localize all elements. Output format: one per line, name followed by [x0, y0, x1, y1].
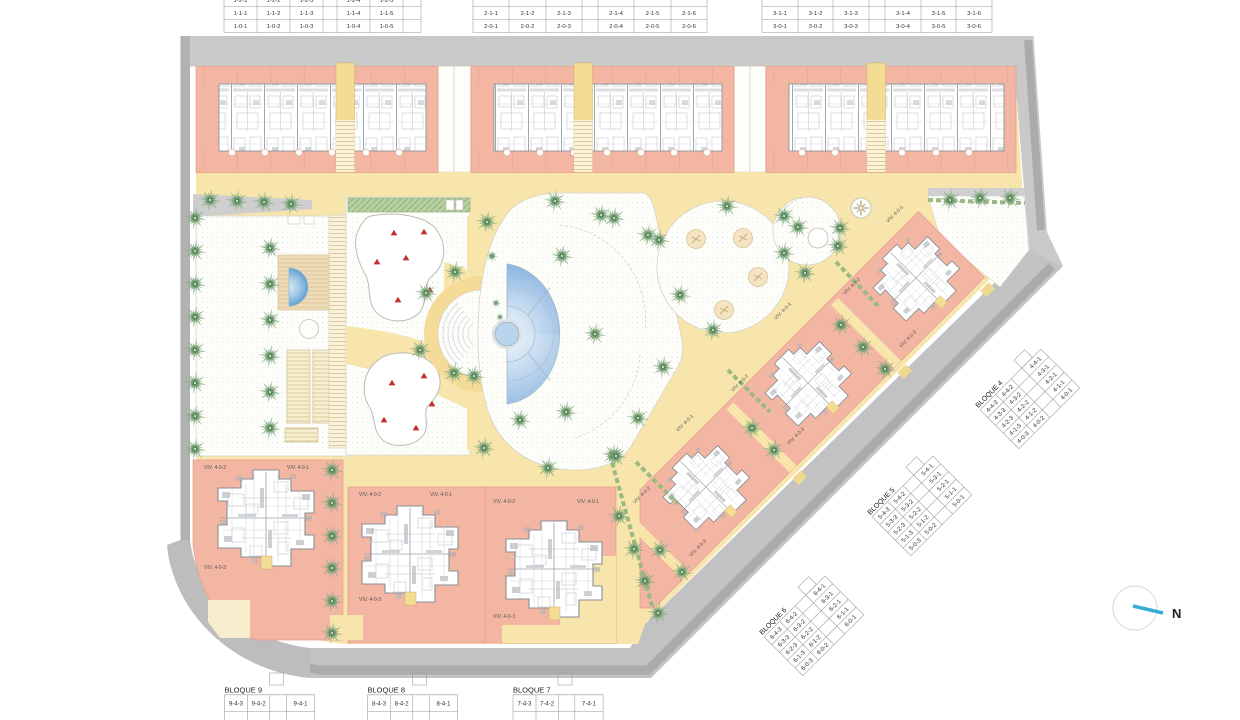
svg-text:1-2-2: 1-2-2: [267, 0, 281, 4]
svg-text:2-0-1: 2-0-1: [484, 24, 498, 30]
svg-text:3-1-6: 3-1-6: [967, 11, 981, 17]
svg-text:8-4-3: 8-4-3: [372, 701, 387, 707]
svg-text:BLOQUE 9: BLOQUE 9: [225, 686, 263, 695]
svg-text:3-1-3: 3-1-3: [844, 11, 858, 17]
svg-text:VIV. 4-0-1: VIV. 4-0-1: [430, 492, 452, 498]
svg-text:3-0-2: 3-0-2: [809, 24, 823, 30]
svg-text:1-0-1: 1-0-1: [234, 24, 248, 30]
svg-text:1-1-5: 1-1-5: [380, 11, 394, 17]
svg-text:2-1-3: 2-1-3: [557, 11, 571, 17]
svg-text:3-0-3: 3-0-3: [844, 24, 858, 30]
svg-text:1-1-3: 1-1-3: [300, 11, 314, 17]
svg-text:VIV. 4-0-1: VIV. 4-0-1: [577, 499, 599, 505]
svg-text:3-0-6: 3-0-6: [967, 24, 981, 30]
svg-text:2-1-5: 2-1-5: [646, 11, 660, 17]
svg-text:VIV. 4-0-2: VIV. 4-0-2: [493, 499, 515, 505]
svg-text:VIV. 4-0-1: VIV. 4-0-1: [287, 465, 309, 471]
svg-text:2-1-2: 2-1-2: [521, 11, 535, 17]
svg-text:VIV. 4-0-3: VIV. 4-0-3: [359, 597, 381, 603]
svg-text:BLOQUE 7: BLOQUE 7: [513, 686, 551, 695]
svg-text:3-1-2: 3-1-2: [809, 11, 823, 17]
svg-text:1-2-3: 1-2-3: [300, 0, 314, 4]
svg-text:7-4-3: 7-4-3: [517, 701, 532, 707]
svg-text:1-1-4: 1-1-4: [347, 11, 361, 17]
svg-text:1-0-4: 1-0-4: [347, 24, 361, 30]
svg-text:3-0-1: 3-0-1: [773, 24, 787, 30]
svg-text:2-0-5: 2-0-5: [646, 24, 660, 30]
svg-text:1-2-4: 1-2-4: [347, 0, 361, 4]
svg-text:7-4-1: 7-4-1: [582, 701, 597, 707]
svg-text:3-0-5: 3-0-5: [932, 24, 946, 30]
svg-text:2-0-3: 2-0-3: [557, 24, 571, 30]
svg-text:7-4-2: 7-4-2: [540, 701, 555, 707]
svg-text:2-0-2: 2-0-2: [521, 24, 535, 30]
svg-text:1-1-1: 1-1-1: [234, 11, 248, 17]
svg-text:VIV. 4-0-3: VIV. 4-0-3: [493, 614, 515, 620]
svg-text:1-0-2: 1-0-2: [267, 24, 281, 30]
svg-text:2-1-1: 2-1-1: [484, 11, 498, 17]
svg-text:2-0-6: 2-0-6: [682, 24, 696, 30]
svg-text:3-1-4: 3-1-4: [896, 11, 910, 17]
svg-text:9-4-1: 9-4-1: [293, 701, 308, 707]
svg-text:VIV. 4-0-2: VIV. 4-0-2: [204, 465, 226, 471]
svg-text:9-4-3: 9-4-3: [229, 701, 244, 707]
svg-text:3-0-4: 3-0-4: [896, 24, 910, 30]
svg-text:3-1-5: 3-1-5: [932, 11, 946, 17]
svg-text:BLOQUE 8: BLOQUE 8: [368, 686, 406, 695]
svg-text:8-4-1: 8-4-1: [436, 701, 451, 707]
svg-text:VIV. 4-0-3: VIV. 4-0-3: [204, 565, 226, 571]
svg-text:2-0-4: 2-0-4: [609, 24, 623, 30]
svg-text:2-1-6: 2-1-6: [682, 11, 696, 17]
svg-text:8-4-2: 8-4-2: [395, 701, 410, 707]
svg-text:N: N: [1172, 606, 1181, 621]
svg-text:1-2-5: 1-2-5: [380, 0, 394, 4]
svg-text:1-2-1: 1-2-1: [234, 0, 248, 4]
svg-text:9-4-2: 9-4-2: [252, 701, 267, 707]
svg-text:2-1-4: 2-1-4: [609, 11, 623, 17]
svg-text:1-1-2: 1-1-2: [267, 11, 281, 17]
svg-text:3-1-1: 3-1-1: [773, 11, 787, 17]
svg-text:VIV. 4-0-2: VIV. 4-0-2: [359, 492, 381, 498]
svg-text:1-0-5: 1-0-5: [380, 24, 394, 30]
svg-text:1-0-3: 1-0-3: [300, 24, 314, 30]
